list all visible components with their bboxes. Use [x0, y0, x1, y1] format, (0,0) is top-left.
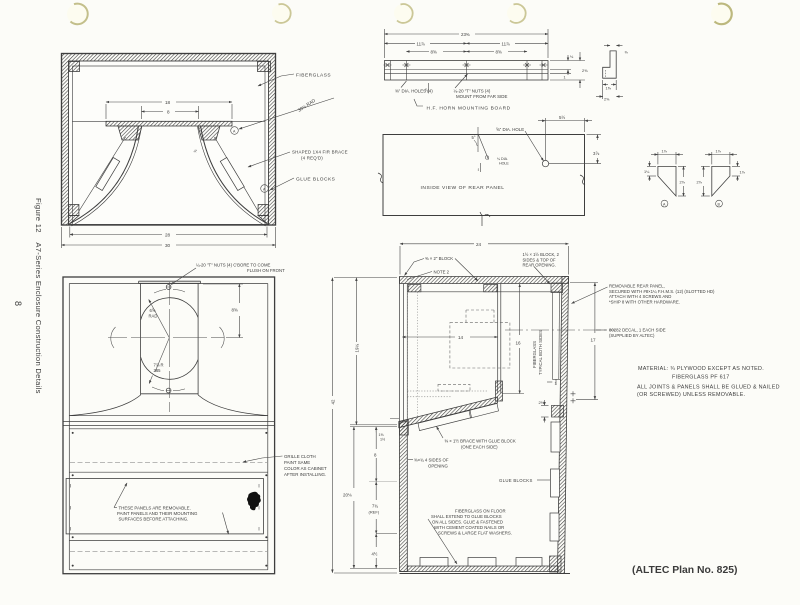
svg-text:17: 17 — [591, 338, 597, 343]
svg-text:RAD: RAD — [149, 313, 158, 318]
svg-text:(SUPPLIED BY ALTEC): (SUPPLIED BY ALTEC) — [609, 333, 655, 338]
svg-text:¼ DIA.: ¼ DIA. — [497, 157, 508, 161]
svg-text:18: 18 — [165, 100, 171, 105]
svg-text:TYPICAL BOTH SIDES: TYPICAL BOTH SIDES — [538, 330, 543, 375]
svg-text:2⅝: 2⅝ — [604, 98, 610, 102]
svg-text:Figure 12 A7-Series Enclosu: Figure 12 A7-Series Enclosure Constructi… — [34, 198, 43, 394]
svg-text:(REF): (REF) — [369, 510, 380, 515]
svg-text:SCREWS & LARGE FLAT WASHERS.: SCREWS & LARGE FLAT WASHERS. — [438, 531, 512, 536]
svg-text:14: 14 — [458, 335, 464, 340]
svg-text:1¼: 1¼ — [644, 170, 650, 174]
svg-text:11⅞: 11⅞ — [502, 41, 511, 46]
svg-text:2½: 2½ — [539, 400, 545, 405]
svg-text:8: 8 — [167, 110, 170, 115]
svg-text:8⅝: 8⅝ — [431, 50, 437, 55]
svg-text:MATERIAL: ¾ PLYWOOD EXCEPT A: MATERIAL: ¾ PLYWOOD EXCEPT AS NOTED. — [638, 366, 764, 372]
svg-text:MOUNT FROM FAR SIDE: MOUNT FROM FAR SIDE — [456, 94, 507, 99]
svg-text:GLUE BLOCKS: GLUE BLOCKS — [499, 478, 533, 483]
svg-text:5½: 5½ — [559, 115, 565, 120]
svg-text:FIBERGLASS PF 617: FIBERGLASS PF 617 — [672, 375, 730, 381]
svg-text:ALL JOINTS & PANELS SHALL BE G: ALL JOINTS & PANELS SHALL BE GLUED & NAI… — [637, 385, 780, 391]
svg-text:SECURED WITH #8×1¼ F.H.M.S. (1: SECURED WITH #8×1¼ F.H.M.S. (12) (SLOTTE… — [609, 289, 715, 294]
svg-text:ATTACH WITH 4 SCREWS AND: ATTACH WITH 4 SCREWS AND — [609, 294, 671, 299]
svg-text:265: 265 — [154, 368, 162, 373]
svg-text:H.F. HORN MOUNTING BOARD: H.F. HORN MOUNTING BOARD — [427, 106, 511, 112]
svg-text:FIBERGLASS: FIBERGLASS — [532, 341, 537, 368]
svg-text:8⅝: 8⅝ — [232, 308, 238, 313]
svg-text:(4 REQ'D): (4 REQ'D) — [301, 156, 323, 161]
svg-text:28: 28 — [165, 233, 171, 238]
svg-text:OPENING: OPENING — [428, 464, 448, 469]
svg-text:⅜ × 2" BLOCK: ⅜ × 2" BLOCK — [425, 256, 453, 261]
svg-text:3⅞: 3⅞ — [593, 151, 599, 156]
svg-text:1⅞: 1⅞ — [662, 150, 668, 154]
svg-text:1½: 1½ — [380, 438, 385, 442]
svg-text:2⅞: 2⅞ — [680, 181, 686, 185]
svg-text:1: 1 — [564, 76, 566, 80]
svg-text:HOLE: HOLE — [499, 162, 509, 166]
svg-text:THESE PANELS ARE REMOVABLE.: THESE PANELS ARE REMOVABLE. — [119, 506, 191, 511]
svg-text:(ONE EACH SIDE): (ONE EACH SIDE) — [461, 445, 498, 450]
svg-text:8⅝: 8⅝ — [496, 50, 502, 55]
svg-text:AFTER INSTALLING.: AFTER INSTALLING. — [284, 472, 326, 477]
svg-text:42: 42 — [331, 399, 336, 404]
svg-text:¼-20 "T" NUTS (4) C'BORE TO CO: ¼-20 "T" NUTS (4) C'BORE TO COME — [196, 263, 271, 268]
svg-text:1⅝: 1⅝ — [606, 87, 612, 91]
svg-text:*SHIP 8 WITH OTHER HARDWARE.: *SHIP 8 WITH OTHER HARDWARE. — [609, 299, 680, 304]
svg-text:REAR OPENING.: REAR OPENING. — [523, 263, 556, 268]
svg-text:11⅞: 11⅞ — [417, 41, 426, 46]
svg-text:2⅝: 2⅝ — [582, 68, 588, 73]
svg-text:23⅜: 23⅜ — [461, 32, 470, 37]
svg-text:GRILLE CLOTH: GRILLE CLOTH — [284, 454, 316, 459]
svg-text:16: 16 — [516, 341, 522, 346]
svg-text:INSIDE VIEW OF REAR PANEL: INSIDE VIEW OF REAR PANEL — [421, 185, 505, 191]
svg-text:PAINT SAME: PAINT SAME — [284, 460, 310, 465]
svg-text:PAINT PANELS AND THEIR MOUNTIN: PAINT PANELS AND THEIR MOUNTING — [117, 511, 198, 516]
svg-text:FLUSH ON FRONT: FLUSH ON FRONT — [247, 268, 285, 273]
svg-text:⅝" DIA. HOLE: ⅝" DIA. HOLE — [496, 127, 524, 132]
svg-text:7¾: 7¾ — [372, 504, 378, 509]
svg-text:(OR SCREWED) UNLESS REMOVABLE.: (OR SCREWED) UNLESS REMOVABLE. — [637, 392, 745, 398]
svg-text:COLOR AS CABINET: COLOR AS CABINET — [284, 466, 327, 471]
svg-text:FIBERGLASS ON FLOOR: FIBERGLASS ON FLOOR — [455, 509, 506, 514]
svg-text:(ALTEC Plan No. 825): (ALTEC Plan No. 825) — [632, 565, 737, 576]
svg-text:NOTE 2: NOTE 2 — [434, 270, 450, 275]
svg-text:SURFACES BEFORE ATTACHING.: SURFACES BEFORE ATTACHING. — [119, 517, 189, 522]
svg-text:WITH CEMENT COATED NAILS OR: WITH CEMENT COATED NAILS OR — [434, 525, 504, 530]
svg-text:SHALL EXTEND TO GLUE BLOCKS: SHALL EXTEND TO GLUE BLOCKS — [431, 514, 502, 519]
svg-text:19¼: 19¼ — [355, 344, 360, 353]
svg-text:FIBERGLASS: FIBERGLASS — [296, 73, 331, 79]
svg-text:¼-20 "T" NUTS (4): ¼-20 "T" NUTS (4) — [454, 89, 491, 94]
svg-text:SHAPED 1X4 FIR BRACE: SHAPED 1X4 FIR BRACE — [292, 150, 348, 155]
svg-text:8: 8 — [13, 301, 23, 306]
svg-text:⅜" DIA. HOLES (4): ⅜" DIA. HOLES (4) — [395, 89, 433, 94]
svg-text:20⅛: 20⅛ — [343, 493, 352, 498]
svg-text:SIDES & TOP OF: SIDES & TOP OF — [523, 257, 556, 262]
svg-text:7⅞ R: 7⅞ R — [154, 363, 164, 368]
svg-text:5°: 5° — [472, 135, 476, 140]
svg-text:4½: 4½ — [372, 552, 378, 557]
svg-text:REMOVABLE REAR PANEL,: REMOVABLE REAR PANEL, — [609, 284, 665, 289]
svg-text:ON ALL SIDES. GLUE & FASTENED: ON ALL SIDES. GLUE & FASTENED — [432, 520, 503, 525]
svg-text:24: 24 — [476, 242, 482, 247]
svg-text:6⅝: 6⅝ — [150, 308, 156, 313]
svg-text:⅜ × 1½ BRACE WITH GLUE BLOCK: ⅜ × 1½ BRACE WITH GLUE BLOCK — [445, 439, 516, 444]
svg-text:2⅞: 2⅞ — [697, 181, 703, 185]
svg-text:1⅞: 1⅞ — [716, 150, 722, 154]
svg-text:⅜×¾ 4 SIDES OF: ⅜×¾ 4 SIDES OF — [414, 458, 449, 463]
svg-text:GLUE BLOCKS: GLUE BLOCKS — [296, 177, 335, 183]
svg-text:30: 30 — [165, 243, 171, 248]
svg-text:1⅞: 1⅞ — [740, 171, 746, 175]
svg-text:80282 DECAL, 1 EACH SIDE: 80282 DECAL, 1 EACH SIDE — [609, 328, 666, 333]
svg-text:1½ × 1½ BLOCK, 2: 1½ × 1½ BLOCK, 2 — [523, 252, 560, 257]
